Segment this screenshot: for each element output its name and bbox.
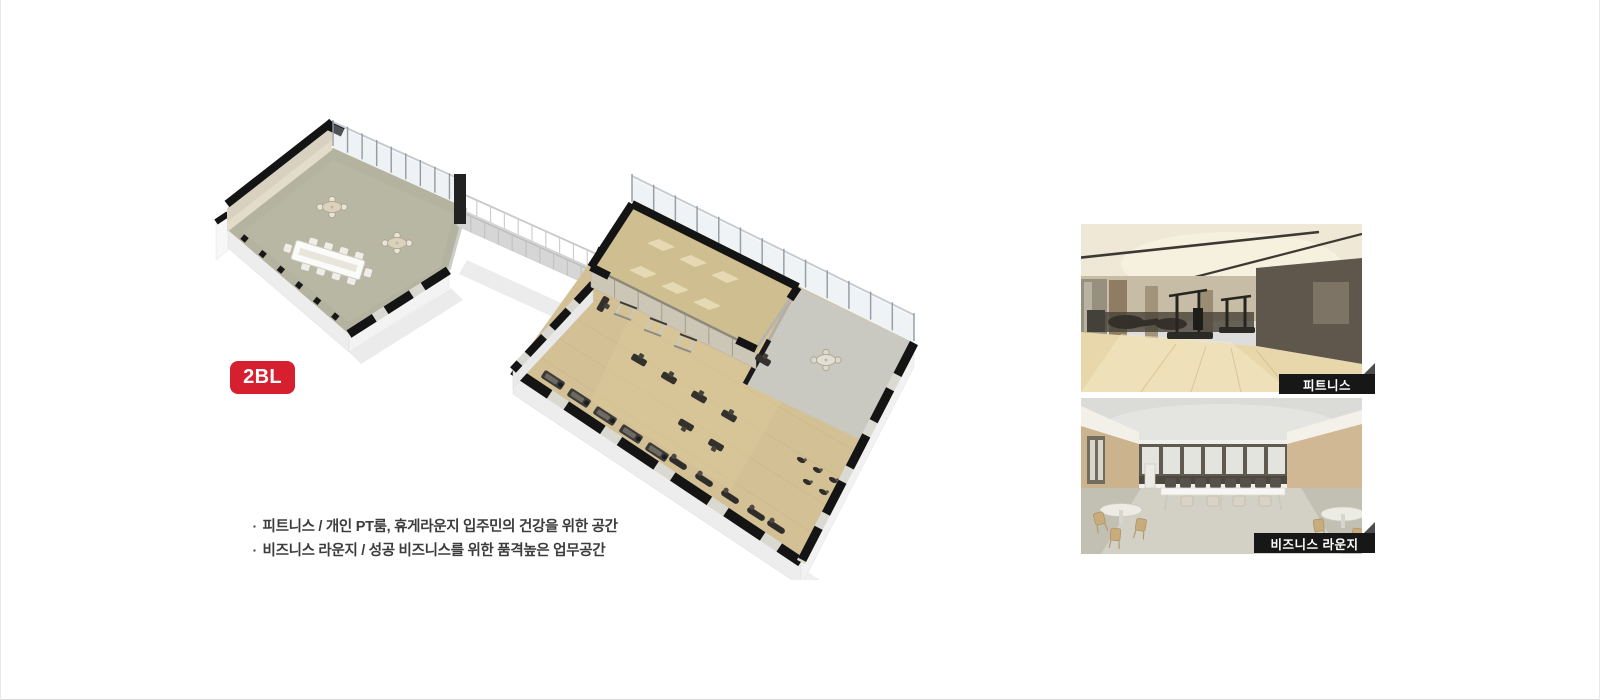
- chair: [1210, 478, 1221, 488]
- bullet-item: ▪ 비즈니스 라운지 / 성공 비즈니스를 위한 품격높은 업무공간: [253, 540, 618, 564]
- bullet-marker: ▪: [253, 515, 256, 538]
- chair: [1207, 496, 1219, 506]
- bullet-item: ▪ 피트니스 / 개인 PT룸, 휴게라운지 입주민의 건강을 위한 공간: [253, 516, 618, 540]
- chair: [1240, 478, 1251, 488]
- window-pane: [1205, 447, 1222, 474]
- photo-business-lounge: [1081, 398, 1362, 554]
- bullet-text: 피트니스 / 개인 PT룸, 휴게라운지 입주민의 건강을 위한 공간: [263, 516, 618, 539]
- table-center: [396, 242, 399, 245]
- chair: [1165, 478, 1176, 488]
- window-pane: [1226, 447, 1243, 474]
- fitness-photo-art: [1081, 224, 1362, 392]
- window-pane: [1184, 447, 1201, 474]
- window-pane: [1247, 447, 1264, 474]
- long-table: [1161, 488, 1285, 495]
- slide-canvas: 2BL ▪ 피트니스 / 개인 PT룸, 휴게라운지 입주민의 건강을 위한 공…: [0, 0, 1600, 700]
- window-pane: [1098, 440, 1103, 480]
- table-center: [331, 206, 334, 209]
- chair: [1233, 496, 1245, 506]
- table-center: [825, 359, 828, 362]
- chair: [1255, 478, 1266, 488]
- window-panes: [1142, 447, 1285, 474]
- bullet-marker: ▪: [253, 539, 256, 562]
- bullet-text: 비즈니스 라운지 / 성공 비즈니스를 위한 품격높은 업무공간: [263, 540, 606, 563]
- window-pane: [1268, 447, 1285, 474]
- photo-fitness: [1081, 224, 1362, 392]
- chair: [1259, 496, 1271, 506]
- equipment: [1155, 318, 1187, 330]
- chair: [1225, 478, 1236, 488]
- chair: [1180, 478, 1191, 488]
- chair: [1270, 478, 1281, 488]
- window-pane: [1090, 440, 1095, 480]
- window-pane: [1163, 447, 1180, 474]
- description-list: ▪ 피트니스 / 개인 PT룸, 휴게라운지 입주민의 건강을 위한 공간 ▪ …: [253, 516, 618, 564]
- bridge-door-pillar: [454, 174, 466, 224]
- wall-panel: [1313, 282, 1349, 324]
- floorplan-illustration: [171, 110, 951, 580]
- photo-label-fitness: 피트니스: [1279, 374, 1375, 394]
- water-cooler: [1145, 464, 1155, 488]
- chair: [1195, 478, 1206, 488]
- label-fold-icon: [1364, 363, 1375, 374]
- business-lounge-photo-art: [1081, 398, 1362, 554]
- chair: [1181, 496, 1193, 506]
- photo-label-business-lounge: 비즈니스 라운지: [1254, 533, 1375, 553]
- dumbbell-rack: [1087, 310, 1105, 332]
- block-badge: 2BL: [230, 361, 295, 394]
- label-fold-icon: [1364, 522, 1375, 533]
